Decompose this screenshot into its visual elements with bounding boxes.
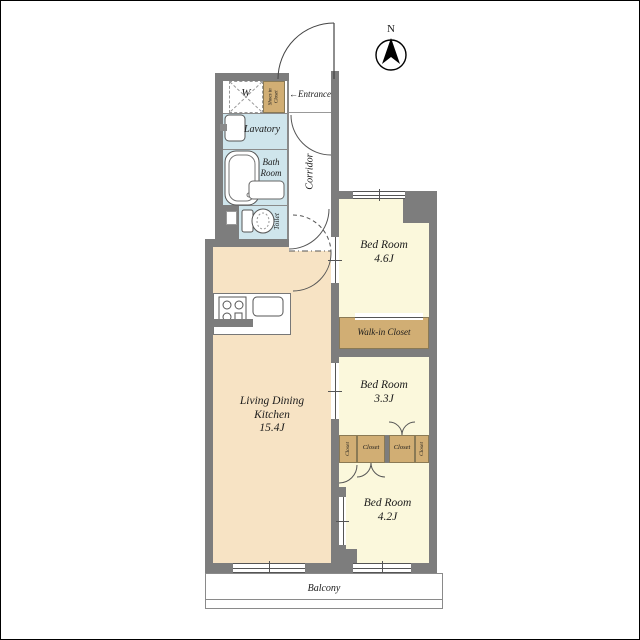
window-ldk	[233, 563, 305, 573]
sliding-door-bedroom-46	[331, 237, 339, 283]
wall	[205, 239, 213, 573]
closet-center-left-label: Closet	[357, 444, 385, 454]
wall	[331, 71, 339, 563]
wall-notch	[403, 199, 429, 223]
balcony-label: Balcony	[205, 583, 443, 597]
sliding-door-bedroom-42	[339, 497, 346, 545]
walk-in-closet-label: Walk-in Closet	[339, 327, 429, 339]
wall	[205, 239, 289, 247]
window-bedroom-46	[353, 191, 405, 199]
bedroom-46-label: Bed Room 4.6J	[339, 239, 429, 269]
entrance-label: ←Entrance	[289, 89, 331, 102]
toilet-label: Toilet	[267, 205, 285, 237]
pipe-niche	[226, 211, 237, 225]
balcony-edge-line	[206, 599, 442, 600]
wall	[215, 73, 289, 81]
washer-label: W	[229, 87, 263, 101]
window-bedroom-42	[353, 563, 411, 573]
kitchen-counter	[213, 293, 291, 335]
wall	[339, 349, 429, 357]
corridor-label: Corridor	[297, 139, 323, 203]
compass-icon	[376, 38, 406, 70]
closet-left-label: Closet	[339, 435, 357, 463]
wall-step	[331, 549, 357, 563]
closet-center-right-label: Closet	[389, 444, 415, 454]
shoes-closet-label: Shoes in Closet	[263, 81, 285, 113]
wall	[215, 73, 223, 247]
entrance-arrow-icon: ←	[289, 89, 298, 99]
bath-room-label: Bath Room	[253, 157, 289, 181]
closet-right-label: Closet	[415, 435, 429, 463]
lavatory-label: Lavatory	[237, 124, 287, 138]
ldk-label: Living Dining Kitchen 15.4J	[213, 395, 331, 441]
bedroom-42-label: Bed Room 4.2J	[346, 497, 429, 527]
sliding-door-bedroom-33	[331, 363, 339, 419]
sliding-door-walk-in-closet	[355, 313, 423, 320]
compass-north-label: N	[384, 23, 398, 35]
entrance-door-arc	[278, 23, 334, 79]
floor-plan: N W Shoes in Closet ←Entrance Lavatory B…	[0, 0, 640, 640]
bedroom-33-label: Bed Room 3.3J	[339, 379, 429, 409]
wall	[429, 191, 437, 573]
